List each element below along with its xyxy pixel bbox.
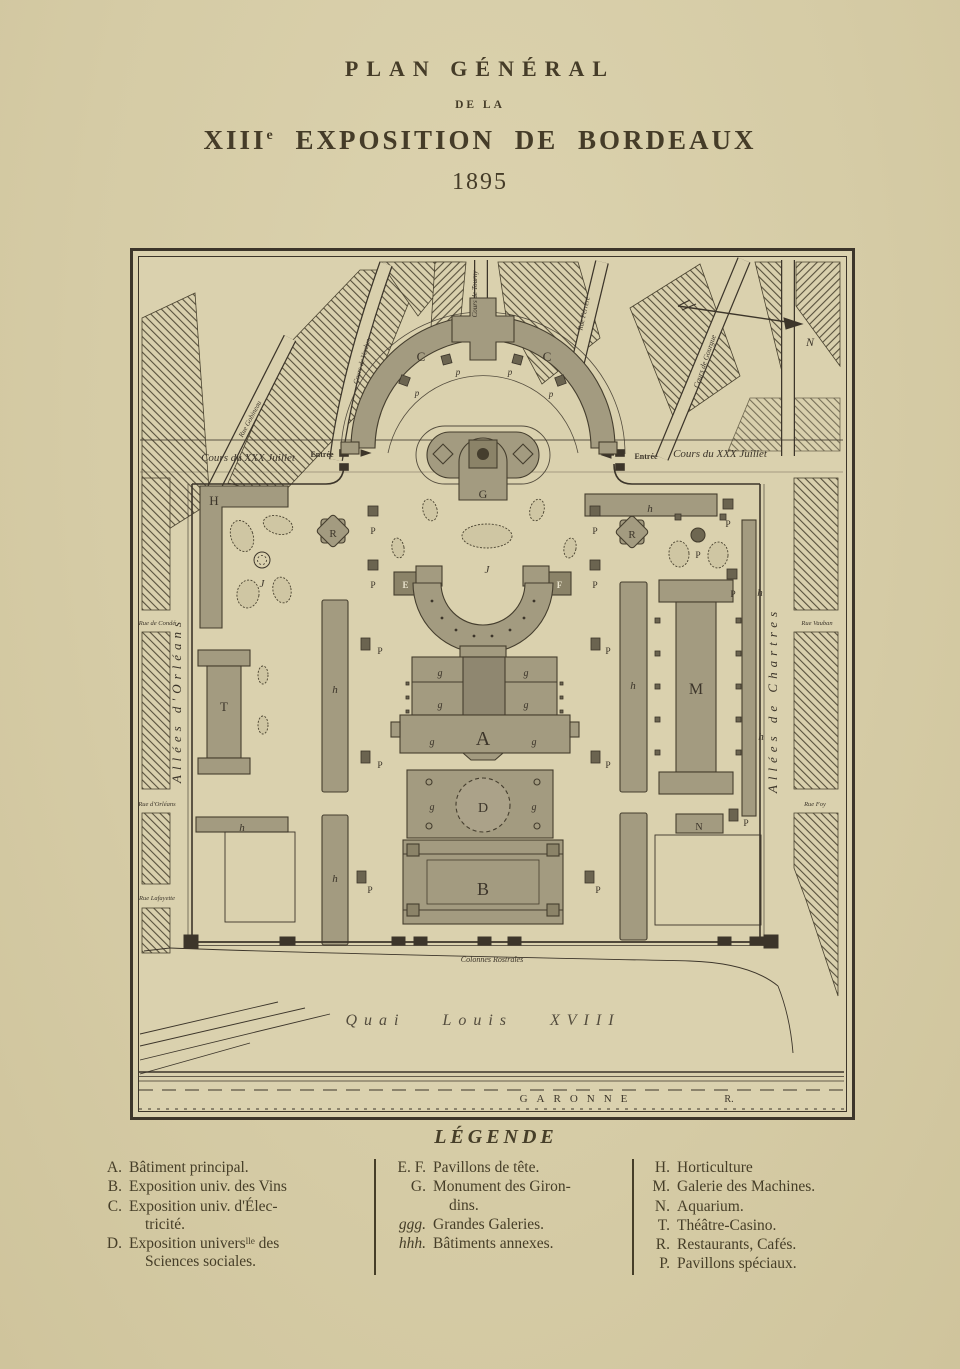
pavilion-square bbox=[406, 682, 409, 685]
legend-item-text: Bâtiments annexes. bbox=[433, 1235, 554, 1253]
pavilion-square bbox=[361, 638, 370, 650]
map-plan: Cours du XXX JuilletCours du XXX Juillet… bbox=[130, 248, 855, 1120]
street-allees-d-orleans: Allées d'Orléans bbox=[169, 617, 184, 784]
legend-item-line: Pavillons de tête. bbox=[433, 1159, 539, 1177]
pavilion-square bbox=[655, 717, 660, 722]
exposition-title-roman: XIII bbox=[203, 125, 266, 155]
pavilion-square bbox=[736, 717, 741, 722]
entrance-right: Entrée bbox=[634, 452, 658, 461]
building-r-label-left: R bbox=[329, 528, 337, 540]
building-f-label: F bbox=[557, 580, 563, 590]
pavilion-square bbox=[441, 354, 452, 365]
legend-item-line: Sciences sociales. bbox=[129, 1253, 279, 1271]
legend-item-text: Restaurants, Cafés. bbox=[677, 1236, 796, 1254]
legend-item-key: D. bbox=[98, 1235, 129, 1272]
legend-column-3: H.HorticultureM.Galerie des Machines.N.A… bbox=[632, 1159, 858, 1275]
pavilion-p-label: P bbox=[730, 590, 735, 600]
building-b-label: B bbox=[477, 879, 489, 899]
pavilion-square bbox=[406, 710, 409, 713]
legend-item: P.Pavillons spéciaux. bbox=[646, 1255, 858, 1273]
legend-item-key: hhh. bbox=[388, 1235, 433, 1253]
pavilion-p-label: p bbox=[414, 388, 420, 398]
gallery-g-label: g bbox=[524, 700, 529, 711]
pavilion-square bbox=[591, 751, 600, 763]
legend-item-line: Galerie des Machines. bbox=[677, 1178, 815, 1196]
page-header: PLAN GÉNÉRAL DE LA XIIIe EXPOSITION DE B… bbox=[0, 0, 960, 196]
legend-item: A.Bâtiment principal. bbox=[98, 1159, 368, 1177]
pavilion-square bbox=[736, 651, 741, 656]
pavilion-square bbox=[368, 506, 378, 516]
gallery-g-label: g bbox=[438, 700, 443, 711]
pavilion-square bbox=[736, 684, 741, 689]
gallery-g-label: g bbox=[524, 668, 529, 679]
legend-item-key: H. bbox=[646, 1159, 677, 1177]
building-e-label: E bbox=[402, 580, 408, 590]
legend-item: ggg.Grandes Galeries. bbox=[388, 1216, 626, 1234]
legend-item-key: N. bbox=[646, 1198, 677, 1216]
legend-item-key: P. bbox=[646, 1255, 677, 1273]
annex-h-label: h bbox=[757, 587, 763, 599]
street-cours-du-xxx-juillet-right: Cours du XXX Juillet bbox=[673, 448, 768, 460]
legend-item-text: Grandes Galeries. bbox=[433, 1216, 544, 1234]
legend-item-line: Théâtre-Casino. bbox=[677, 1217, 776, 1235]
pavilion-square bbox=[655, 651, 660, 656]
legend-item-key: T. bbox=[646, 1217, 677, 1235]
street-rue-foy: Rue Foy bbox=[803, 801, 826, 808]
legend: LÉGENDE A.Bâtiment principal.B.Expositio… bbox=[98, 1126, 864, 1275]
gallery-g-label: g bbox=[438, 668, 443, 679]
legend-item-line: Aquarium. bbox=[677, 1198, 744, 1216]
annex-h-label: h bbox=[647, 503, 653, 515]
legend-item: H.Horticulture bbox=[646, 1159, 858, 1177]
pavilion-square bbox=[560, 682, 563, 685]
legend-item-line: dins. bbox=[433, 1197, 571, 1215]
pavilion-p-label: P bbox=[377, 647, 382, 657]
gallery-g-label: g bbox=[430, 802, 435, 813]
legend-item-line: Exposition univ. d'Élec- bbox=[129, 1198, 278, 1216]
legend-item-key: A. bbox=[98, 1159, 129, 1177]
building-c-label-right: C bbox=[543, 349, 552, 364]
map-svg: Cours du XXX JuilletCours du XXX Juillet… bbox=[130, 248, 855, 1120]
pavilion-square bbox=[590, 560, 600, 570]
legend-item-key: R. bbox=[646, 1236, 677, 1254]
pavilion-square bbox=[591, 638, 600, 650]
legend-item-text: Horticulture bbox=[677, 1159, 753, 1177]
legend-item-text: Pavillons spéciaux. bbox=[677, 1255, 797, 1273]
exposition-year: 1895 bbox=[0, 169, 960, 196]
legend-item-text: Bâtiment principal. bbox=[129, 1159, 249, 1177]
gallery-g-label: g bbox=[430, 737, 435, 748]
pavilion-square bbox=[590, 506, 600, 516]
pavilion-square bbox=[406, 696, 409, 699]
label-colonnes-rostrales: Colonnes Rostrales bbox=[461, 955, 523, 964]
entrance-left: Entrée bbox=[310, 450, 334, 459]
annex-h-label: h bbox=[239, 822, 245, 834]
pavilion-square bbox=[727, 569, 737, 579]
pavilion-p-label: P bbox=[743, 819, 748, 829]
legend-item-line: Bâtiments annexes. bbox=[433, 1235, 554, 1253]
legend-item-text: Théâtre-Casino. bbox=[677, 1217, 776, 1235]
legend-item-line: Exposition universˡˡᵉ des bbox=[129, 1235, 279, 1253]
building-h-label: H bbox=[209, 493, 218, 508]
legend-item: T.Théâtre-Casino. bbox=[646, 1217, 858, 1235]
building-m-label: M bbox=[689, 681, 703, 698]
building-g-label: G bbox=[479, 487, 488, 501]
exposition-title-rest: EXPOSITION DE BORDEAUX bbox=[276, 125, 757, 155]
street-rue-lafayette: Rue Lafayette bbox=[138, 895, 175, 902]
label-garonne-r: R. bbox=[724, 1094, 733, 1105]
label-quai-louis-xviii: Quai Louis XVIII bbox=[345, 1012, 620, 1029]
pavilion-square bbox=[729, 809, 738, 821]
legend-item-line: Pavillons spéciaux. bbox=[677, 1255, 797, 1273]
building-n-label: N bbox=[695, 822, 702, 833]
legend-item: M.Galerie des Machines. bbox=[646, 1178, 858, 1196]
legend-item-text: Aquarium. bbox=[677, 1198, 744, 1216]
pavilion-square bbox=[357, 871, 366, 883]
legend-title: LÉGENDE bbox=[376, 1126, 616, 1149]
pavilion-p-label: P bbox=[595, 886, 600, 896]
pavilion-square bbox=[675, 514, 681, 520]
pavilion-p-label: P bbox=[377, 761, 382, 771]
legend-column-2: E. F.Pavillons de tête.G.Monument des Gi… bbox=[374, 1159, 626, 1275]
pavilion-p-label: P bbox=[367, 886, 372, 896]
legend-item: G.Monument des Giron-dins. bbox=[388, 1178, 626, 1215]
pavilion-p-label: P bbox=[725, 520, 730, 530]
legend-item: R.Restaurants, Cafés. bbox=[646, 1236, 858, 1254]
legend-item-line: Grandes Galeries. bbox=[433, 1216, 544, 1234]
street-rue-vauban: Rue Vauban bbox=[800, 620, 832, 627]
compass-n-label: N bbox=[805, 335, 815, 349]
legend-item-line: tricité. bbox=[129, 1216, 278, 1234]
building-c-label-left: C bbox=[417, 349, 426, 364]
pavilion-p-label: P bbox=[370, 527, 375, 537]
legend-item-key: C. bbox=[98, 1198, 129, 1235]
exposition-title-sup: e bbox=[267, 128, 276, 143]
legend-item-key: G. bbox=[388, 1178, 433, 1215]
legend-item-text: Exposition univ. des Vins bbox=[129, 1178, 287, 1196]
legend-item-line: Exposition univ. des Vins bbox=[129, 1178, 287, 1196]
legend-item-line: Monument des Giron- bbox=[433, 1178, 571, 1196]
pavilion-p-label: p bbox=[548, 389, 554, 399]
legend-item-line: Horticulture bbox=[677, 1159, 753, 1177]
legend-item: C.Exposition univ. d'Élec-tricité. bbox=[98, 1198, 368, 1235]
legend-item-line: Restaurants, Cafés. bbox=[677, 1236, 796, 1254]
pavilion-square bbox=[655, 618, 660, 623]
gallery-g-label: g bbox=[532, 802, 537, 813]
pavilion-square bbox=[585, 871, 594, 883]
pavilion-square bbox=[655, 684, 660, 689]
legend-item: B.Exposition univ. des Vins bbox=[98, 1178, 368, 1196]
legend-item: hhh.Bâtiments annexes. bbox=[388, 1235, 626, 1253]
legend-item-key: M. bbox=[646, 1178, 677, 1196]
pavilion-square bbox=[368, 560, 378, 570]
building-d-label: D bbox=[478, 801, 488, 816]
building-t-label: T bbox=[220, 699, 228, 714]
legend-item-key: B. bbox=[98, 1178, 129, 1196]
exposition-title: XIIIe EXPOSITION DE BORDEAUX bbox=[0, 125, 960, 156]
legend-item-text: Monument des Giron-dins. bbox=[433, 1178, 571, 1215]
street-cours-de-tourny: Cours de Tourny bbox=[471, 270, 479, 318]
legend-item: D.Exposition universˡˡᵉ desSciences soci… bbox=[98, 1235, 368, 1272]
pavilion-p-label: P bbox=[695, 551, 700, 561]
pavilion-p-label: P bbox=[592, 581, 597, 591]
legend-item-text: Exposition univ. d'Élec-tricité. bbox=[129, 1198, 278, 1235]
annex-h-label: h bbox=[758, 731, 764, 743]
street-rue-de-conde: Rue de Condé bbox=[138, 620, 177, 627]
legend-item-key: E. F. bbox=[388, 1159, 433, 1177]
pavilion-square bbox=[512, 354, 523, 365]
pavilion-square bbox=[655, 750, 660, 755]
legend-item: N.Aquarium. bbox=[646, 1198, 858, 1216]
legend-item-key: ggg. bbox=[388, 1216, 433, 1234]
gallery-g-label: g bbox=[532, 737, 537, 748]
label-garonne: GARONNE bbox=[520, 1093, 637, 1105]
annex-h-label: h bbox=[332, 684, 338, 696]
annex-h-label: h bbox=[332, 873, 338, 885]
pavilion-p-label: P bbox=[592, 527, 597, 537]
legend-item-text: Exposition universˡˡᵉ desSciences social… bbox=[129, 1235, 279, 1272]
legend-item-text: Pavillons de tête. bbox=[433, 1159, 539, 1177]
legend-columns: A.Bâtiment principal.B.Exposition univ. … bbox=[98, 1159, 864, 1275]
annex-h-label: h bbox=[630, 680, 636, 692]
page-title: PLAN GÉNÉRAL bbox=[0, 56, 960, 82]
pavilion-p-label: P bbox=[605, 647, 610, 657]
legend-item: E. F.Pavillons de tête. bbox=[388, 1159, 626, 1177]
pavilion-square bbox=[736, 618, 741, 623]
pavilion-p-label: P bbox=[370, 581, 375, 591]
pavilion-p-label: P bbox=[605, 761, 610, 771]
legend-column-1: A.Bâtiment principal.B.Exposition univ. … bbox=[98, 1159, 368, 1275]
legend-item-line: Bâtiment principal. bbox=[129, 1159, 249, 1177]
street-cours-du-xxx-juillet-left: Cours du XXX Juillet bbox=[201, 452, 296, 464]
pavilion-square bbox=[736, 750, 741, 755]
scanned-page: { "title": { "line1": "PLAN GÉNÉRAL", "l… bbox=[0, 0, 960, 1369]
pavilion-p-label: p bbox=[507, 367, 513, 377]
pavilion-square bbox=[361, 751, 370, 763]
street-allees-de-chartres: Allées de Chartres bbox=[765, 607, 780, 794]
pavilion-square bbox=[560, 696, 563, 699]
building-r-label-right: R bbox=[628, 529, 636, 541]
street-rue-d-orleans: Rue d'Orléans bbox=[137, 801, 176, 808]
pavilion-square bbox=[723, 499, 733, 509]
building-a-label: A bbox=[476, 728, 491, 750]
pavilion-square bbox=[560, 710, 563, 713]
page-subtitle: DE LA bbox=[0, 99, 960, 111]
legend-item-text: Galerie des Machines. bbox=[677, 1178, 815, 1196]
pavilion-p-label: p bbox=[455, 367, 461, 377]
